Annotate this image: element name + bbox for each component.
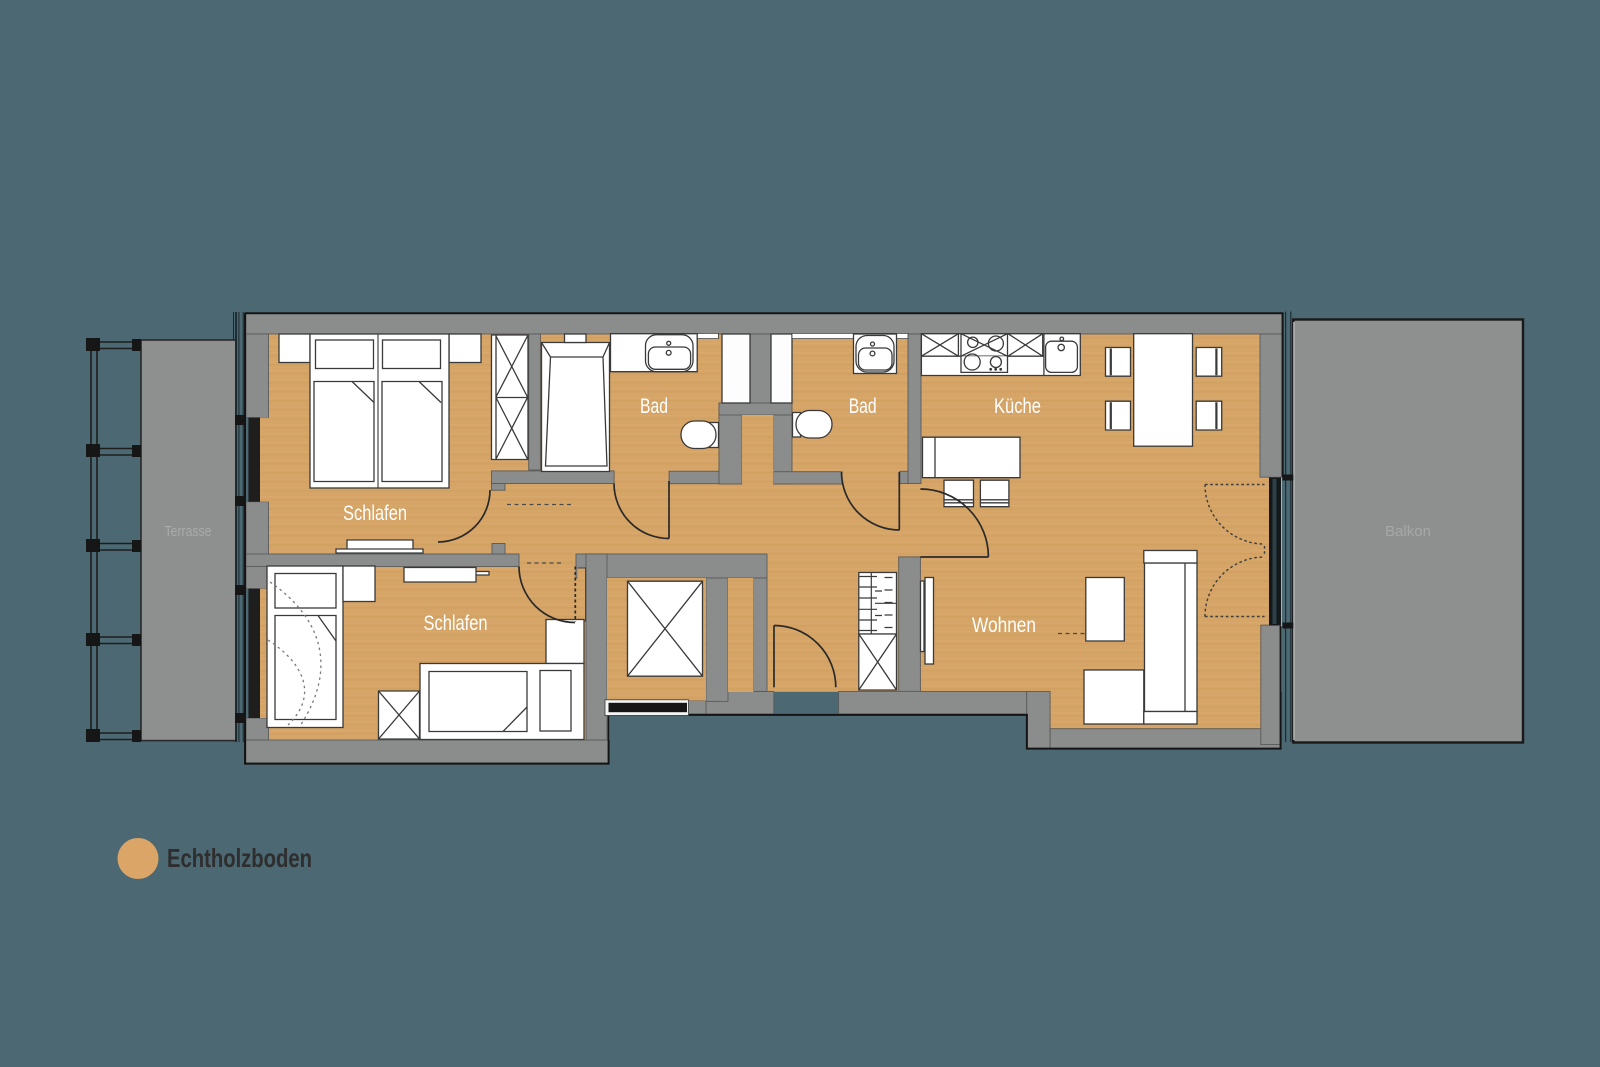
svg-text:Balkon: Balkon <box>1385 523 1431 540</box>
svg-text:Terrasse: Terrasse <box>165 523 212 540</box>
svg-text:Echtholzboden: Echtholzboden <box>167 843 312 873</box>
svg-text:Küche: Küche <box>994 395 1041 418</box>
svg-text:Bad: Bad <box>640 395 668 418</box>
svg-text:Wohnen: Wohnen <box>972 614 1036 637</box>
svg-text:Bad: Bad <box>849 395 877 418</box>
svg-text:Schlafen: Schlafen <box>424 612 488 635</box>
svg-text:Schlafen: Schlafen <box>343 502 407 525</box>
